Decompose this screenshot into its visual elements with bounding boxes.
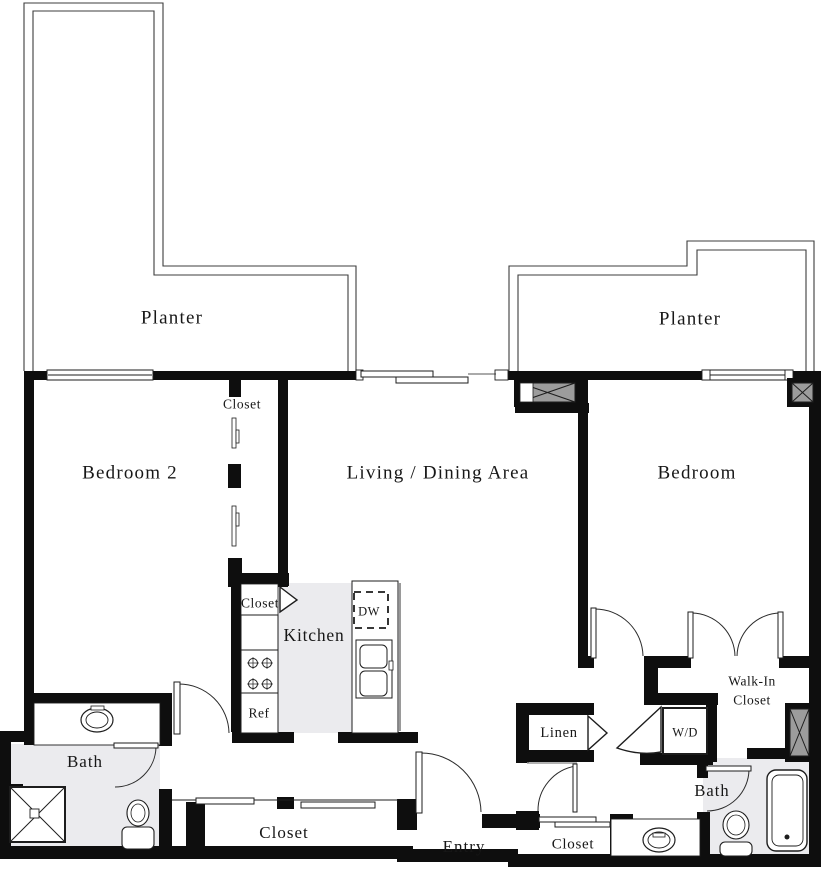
wall-bath1-right-upper xyxy=(159,693,172,746)
toilet1-tank xyxy=(122,827,154,849)
shower-drain xyxy=(30,809,39,818)
wall-linen-bottom xyxy=(516,750,594,762)
door-walk-in-right-leaf xyxy=(778,612,783,658)
toilet1-bowl-inner xyxy=(131,804,145,822)
closet-corridor-panel-1 xyxy=(196,798,254,804)
closet-entry-panel-2 xyxy=(555,822,610,827)
door-kitchen-hall-leaf xyxy=(174,682,180,734)
kitchen-sink-bowl-2 xyxy=(360,671,387,696)
label-closet-corridor: Closet xyxy=(259,823,308,842)
bath1-sink-inner xyxy=(86,712,108,728)
wall-linen-top xyxy=(516,703,594,715)
slider-jamb-right xyxy=(495,370,508,380)
closet1-panel-1b xyxy=(236,430,239,443)
wall-closet1-stub-top xyxy=(229,378,241,397)
label-bath-2: Bath xyxy=(694,781,729,800)
label-kitchen: Kitchen xyxy=(284,625,345,645)
wall-closet-corridor-post xyxy=(186,802,205,847)
wall-kitchen-bottom-left xyxy=(232,732,294,743)
label-linen: Linen xyxy=(540,725,577,741)
closet1-panel-1a xyxy=(232,418,236,448)
label-closet-bedroom2-upper: Closet xyxy=(223,397,261,412)
wall-bath1-right-lower xyxy=(159,789,172,849)
floor-plan-svg: PlanterPlanterBedroom 2Living / Dining A… xyxy=(0,0,821,870)
closet1-panel-2a xyxy=(232,506,236,546)
wall-left xyxy=(24,371,34,745)
label-planter-left: Planter xyxy=(141,308,203,329)
label-bedroom: Bedroom xyxy=(657,463,736,484)
wall-closet1-stub-mid xyxy=(228,464,241,488)
wall-bath1-top xyxy=(24,693,170,704)
label-closet-entry: Closet xyxy=(552,836,595,852)
wall-top-mid xyxy=(153,371,358,380)
door-bath2-leaf xyxy=(706,766,751,771)
wall-divider-bedroom2 xyxy=(278,378,288,587)
wall-wic-horizontal xyxy=(644,693,718,705)
wall-bedroom-bottom-b xyxy=(644,656,691,668)
floor-plan: PlanterPlanterBedroom 2Living / Dining A… xyxy=(0,0,821,870)
wall-entry-left-block xyxy=(397,799,417,830)
label-walk-in-line2: Closet xyxy=(733,693,771,708)
door-walk-in-left-leaf xyxy=(688,612,693,658)
tub-drain xyxy=(785,835,790,840)
closet-entry-panel-1 xyxy=(539,817,596,822)
slider-panel-1 xyxy=(361,371,433,377)
wall-wic-left-upper xyxy=(644,668,658,695)
label-wd: W/D xyxy=(672,725,698,739)
closet-corridor-panel-2 xyxy=(301,802,375,808)
door-bath1-leaf xyxy=(114,743,158,748)
label-closet-bedroom2-lower: Closet xyxy=(241,596,279,611)
slider-panel-2 xyxy=(396,377,468,383)
toilet2-tank xyxy=(720,842,752,856)
wall-right xyxy=(809,378,821,867)
label-entry: Entry xyxy=(443,837,486,856)
label-dw: DW xyxy=(358,604,380,618)
label-bedroom-2: Bedroom 2 xyxy=(82,463,178,484)
wall-bedroom-left xyxy=(578,378,588,668)
wall-closet2-left-post xyxy=(516,811,539,830)
bath1-faucet xyxy=(91,706,104,710)
wall-bottom-left-unit xyxy=(0,846,413,859)
door-hall-leaf xyxy=(573,764,577,812)
wall-bedroom-bottom-c xyxy=(779,656,811,668)
label-planter-right: Planter xyxy=(659,309,721,330)
closet1-panel-2b xyxy=(236,513,239,526)
window-cap-left xyxy=(702,370,710,380)
door-entry-leaf xyxy=(416,752,422,813)
label-walk-in-line1: Walk-In xyxy=(728,674,775,689)
label-ref: Ref xyxy=(249,706,270,721)
bath2-faucet xyxy=(653,833,665,837)
toilet2-bowl-inner xyxy=(727,815,745,835)
wall-kitchen-bottom-right xyxy=(338,732,418,743)
wall-corridor-panel-post xyxy=(277,797,294,809)
label-living-dining: Living / Dining Area xyxy=(347,463,530,484)
column-top-left-slot xyxy=(520,383,533,402)
label-bath-1: Bath xyxy=(67,752,103,771)
door-bedroom-leaf xyxy=(591,608,596,658)
kitchen-sink-bowl-1 xyxy=(360,645,387,668)
kitchen-sink-handle xyxy=(389,661,393,670)
